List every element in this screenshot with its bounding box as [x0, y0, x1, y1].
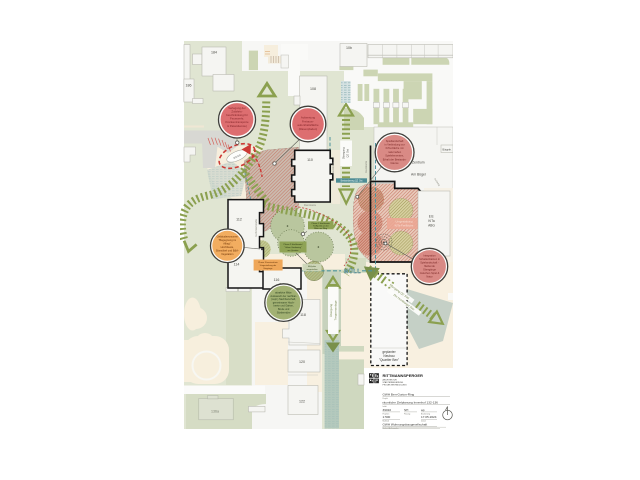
svg-text:GWH Wohnungsbaugesellschaft: GWH Wohnungsbaugesellschaft — [383, 422, 428, 426]
svg-text:Eingänge: Eingänge — [264, 268, 274, 270]
svg-text:Spielelementen,: Spielelementen, — [385, 154, 404, 158]
svg-text:108: 108 — [310, 87, 316, 91]
svg-text:(Rasenpfaden): (Rasenpfaden) — [299, 127, 318, 131]
svg-text:122: 122 — [299, 399, 305, 403]
svg-text:Raumkante: Raumkante — [365, 160, 368, 173]
svg-text:PROJEKTENTWICKLUNG: PROJEKTENTWICKLUNG — [383, 384, 407, 386]
svg-text:186: 186 — [186, 84, 192, 88]
svg-text:Übergänge: Übergänge — [423, 268, 436, 272]
svg-text:Kurfürstenstraße: Kurfürstenstraße — [255, 218, 258, 236]
svg-text:136a: 136a — [211, 410, 219, 414]
svg-text:Hochbeete,: Hochbeete, — [221, 245, 235, 249]
svg-text:Am Bügel: Am Bügel — [411, 173, 426, 177]
svg-text:Schattenhainen in: Schattenhainen in — [419, 257, 440, 261]
svg-text:Übergang: Übergang — [341, 147, 345, 159]
svg-text:Vegetation: Vegetation — [221, 252, 234, 256]
svg-text:Bearbeitung: Bearbeitung — [421, 412, 430, 415]
svg-text:Mitte am Weg: Mitte am Weg — [314, 227, 328, 230]
svg-text:Gebäudevorzonen: Gebäudevorzonen — [217, 235, 239, 239]
svg-text:10b: 10b — [346, 46, 352, 50]
svg-text:KiTa-Fläche mit: KiTa-Fläche mit — [386, 146, 404, 150]
svg-text:Phase 1 Hochbeete: Phase 1 Hochbeete — [312, 222, 331, 225]
svg-text:fließende: fließende — [424, 264, 435, 268]
svg-text:112: 112 — [236, 218, 242, 222]
svg-text:zwischen Spiel &: zwischen Spiel & — [420, 271, 440, 275]
svg-text:Erhalt der Bestands-: Erhalt der Bestands- — [383, 157, 407, 161]
svg-text:GWH Ben-Gurion-Ring: GWH Ben-Gurion-Ring — [383, 393, 415, 397]
svg-text:116: 116 — [274, 278, 280, 282]
svg-text:am Quartier: am Quartier — [288, 249, 299, 252]
svg-text:Treppenanlage: Treppenanlage — [333, 300, 337, 320]
svg-text:Maßstab: Maßstab — [383, 420, 390, 423]
svg-text:Spiellandschaft: Spiellandschaft — [386, 139, 404, 143]
svg-text:Projektnr.: Projektnr. — [383, 412, 391, 415]
svg-text:MÜLL: MÜLL — [344, 268, 361, 275]
svg-text:in Verbindung zur: in Verbindung zur — [385, 143, 405, 147]
svg-text:EG:: EG: — [429, 215, 435, 219]
svg-text:KiTa: KiTa — [428, 219, 434, 223]
svg-text:Raumkante: Raumkante — [332, 161, 335, 174]
svg-text:Raumkante: Raumkante — [304, 204, 317, 207]
svg-text:Phase 2 Hochbeete/: Phase 2 Hochbeete/ — [284, 243, 303, 246]
svg-text:Alltag":: Alltag": — [223, 242, 231, 246]
svg-text:bäume: bäume — [391, 161, 399, 165]
svg-text:SH: SH — [404, 408, 408, 412]
svg-text:114: 114 — [234, 263, 240, 267]
svg-text:Zentrum: Zentrum — [412, 161, 425, 165]
svg-text:Inhalt: Inhalt — [383, 405, 388, 408]
svg-text:"Quartier Ben": "Quartier Ben" — [379, 358, 399, 362]
svg-text:120: 120 — [299, 360, 305, 364]
svg-text:Bestandsweg QZ Ost: Bestandsweg QZ Ost — [341, 179, 363, 182]
svg-text:"Begegnung im: "Begegnung im — [218, 238, 236, 242]
svg-text:17.05.2024: 17.05.2024 — [421, 415, 437, 419]
svg-text:Spielandschaft -: Spielandschaft - — [420, 261, 439, 265]
svg-text:Planung: Planung — [404, 413, 410, 415]
svg-text:RITTMANNSPERGER: RITTMANNSPERGER — [383, 373, 424, 378]
svg-text:Integration: Integration — [423, 254, 436, 258]
svg-text:Bürgerh.: Bürgerh. — [443, 148, 453, 151]
svg-text:räumliche Zielplanung Innenhof: räumliche Zielplanung Innenhof 132-136 — [383, 400, 439, 404]
svg-text:118: 118 — [300, 313, 306, 317]
svg-text:1:500: 1:500 — [383, 415, 391, 419]
svg-text:KiTa-Freifläche: KiTa-Freifläche — [395, 223, 414, 227]
svg-text:umgestalten: umgestalten — [306, 268, 318, 271]
svg-text:ap: ap — [421, 408, 425, 412]
svg-text:Umgestaltung der: Umgestaltung der — [260, 264, 277, 267]
svg-text:Projekt: Projekt — [383, 397, 389, 400]
svg-text:"Urban Gardening": "Urban Gardening" — [284, 246, 302, 249]
svg-text:39010: 39010 — [383, 408, 392, 412]
svg-text:naturnahen: naturnahen — [388, 150, 402, 154]
svg-text:QZ Ost: QZ Ost — [345, 149, 349, 158]
svg-text:ABG: ABG — [428, 224, 435, 228]
svg-text:Sitzmöbel und B&A-: Sitzmöbel und B&A- — [216, 249, 239, 253]
svg-text:Datum: Datum — [421, 420, 427, 423]
svg-text:Treffpunkt an der: Treffpunkt an der — [313, 225, 329, 228]
svg-text:Sitzbereiche: Sitzbereiche — [277, 311, 291, 314]
svg-text:Müllplatz: Müllplatz — [308, 265, 316, 268]
svg-text:& Paketdienste): & Paketdienste) — [227, 124, 247, 128]
svg-text:Phase 3 barrierefreie: Phase 3 barrierefreie — [258, 261, 278, 264]
svg-text:Natur: Natur — [426, 275, 432, 279]
svg-text:110: 110 — [307, 158, 313, 162]
svg-text:184: 184 — [211, 51, 217, 55]
